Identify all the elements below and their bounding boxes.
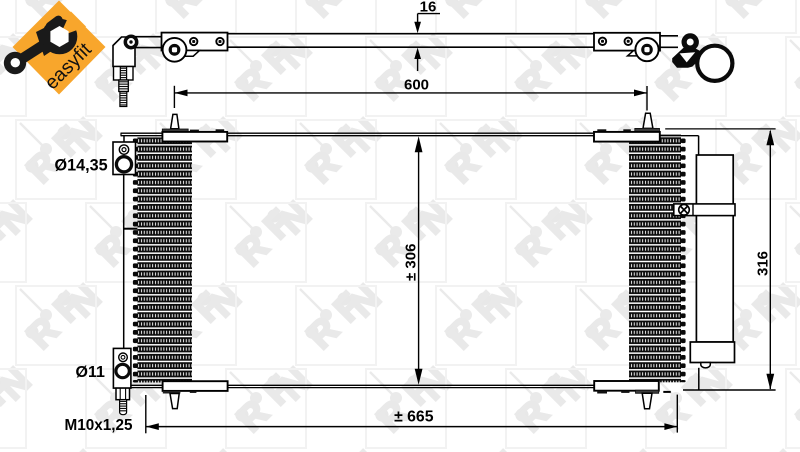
svg-text:M10x1,25: M10x1,25 bbox=[65, 417, 134, 434]
svg-text:600: 600 bbox=[404, 77, 429, 94]
svg-text:± 306: ± 306 bbox=[402, 244, 419, 281]
svg-text:316: 316 bbox=[755, 251, 772, 276]
svg-text:Ø14,35: Ø14,35 bbox=[55, 157, 108, 175]
svg-text:± 665: ± 665 bbox=[394, 409, 434, 426]
svg-text:Ø11: Ø11 bbox=[76, 364, 105, 381]
